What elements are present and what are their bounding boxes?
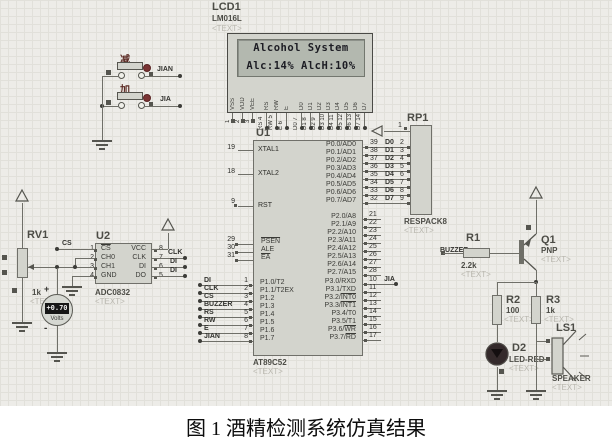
mcu-pin-number: 35 <box>370 171 378 178</box>
wire <box>497 282 536 283</box>
mcu-pin-number: 23 <box>369 227 377 234</box>
pin-end-marker <box>364 339 367 342</box>
lcd-pin-name: D7 <box>362 94 368 110</box>
pin-row: 32 D7 9 <box>363 197 410 205</box>
power-terminal-icon <box>529 186 543 200</box>
lcd-pin-name: D0 <box>299 94 305 110</box>
pin-name: P2.3/A11 <box>295 237 359 245</box>
pin-stub <box>238 150 253 151</box>
net-label: D5 <box>385 179 394 186</box>
wire <box>57 249 95 250</box>
mcu-pin-number: 30 <box>223 244 235 251</box>
pin-name: P3.2/INT0 <box>295 294 359 302</box>
mcu-pin-number: 25 <box>369 243 377 250</box>
r3-value: 1k <box>546 306 555 315</box>
mcu-pin-number: 7 <box>238 325 248 332</box>
mcu-pin-number: 37 <box>370 155 378 162</box>
mcu-pin-number: 38 <box>370 147 378 154</box>
respack-pin-number: 2 <box>400 139 404 146</box>
meter-plus-label: + <box>44 284 49 294</box>
figure-caption: 图 1 酒精检测系统仿真结果 <box>0 412 612 441</box>
lcd-pin-label: D310 <box>320 111 326 130</box>
junction-dot <box>285 126 289 130</box>
pin-name: P0.6/AD6 <box>290 189 359 197</box>
net-label-jia: JIA <box>160 96 171 103</box>
pot-ref: RV1 <box>27 229 48 241</box>
mcu-p3-pin-stubs: 10 JIA 11 12 13 <box>363 278 399 342</box>
pot-terminal-marker <box>2 255 7 260</box>
mcu-ref: U1 <box>256 127 270 139</box>
net-label: D0 <box>385 139 394 146</box>
d2-ref: D2 <box>512 342 526 354</box>
pin-name: VCC <box>112 244 149 253</box>
mcu-pin-number: 34 <box>370 179 378 186</box>
q1-ref: Q1 <box>541 234 556 246</box>
net-label: CLK <box>204 285 218 292</box>
mcu-pin-number: 19 <box>223 144 235 151</box>
pin-name: P3.4/T0 <box>295 310 359 318</box>
wire <box>168 233 169 249</box>
lcd-part: LM016L <box>212 14 242 23</box>
pin-name: CLK <box>112 253 149 262</box>
q1-text-placeholder: <TEXT> <box>541 255 571 264</box>
pin-stub <box>238 244 253 245</box>
mcu-pin-number: 13 <box>369 300 377 307</box>
wire-end-dot <box>198 339 202 343</box>
origin-marker <box>106 70 111 75</box>
lcd-pin-label: D18 <box>302 111 308 130</box>
mcu-pin-number: 21 <box>369 211 377 218</box>
respack-pin1-number: 1 <box>398 122 402 129</box>
mcu-pin-number: 4 <box>238 301 248 308</box>
mcu-pin-number: 28 <box>369 267 377 274</box>
adc-ref: U2 <box>96 230 110 242</box>
lcd-power-pins: VSS VSS1 VDD VDD2 VEE VEE3 <box>228 80 258 132</box>
pin-name: P3.3/INT1 <box>295 302 359 310</box>
pin-name: P0.3/AD3 <box>290 165 359 173</box>
pot-wiper-arrow-icon[interactable] <box>28 264 34 270</box>
pin-end-marker <box>251 119 255 123</box>
pin-name: DI <box>112 262 149 271</box>
resistor-r3[interactable] <box>531 296 541 324</box>
meter-minus-label: - <box>44 323 47 334</box>
wire <box>497 367 498 390</box>
pin-end-marker <box>235 259 238 262</box>
r2-value: 100 <box>506 306 519 315</box>
origin-marker <box>499 369 504 374</box>
net-label: DI <box>204 277 211 284</box>
lcd-pin-label: D29 <box>311 111 317 130</box>
mcu-p0-pin-rows: 39 D0 2 38 D1 3 37 D2 4 36 <box>363 141 410 205</box>
mcu-ctrl-pin-stubs: 29 30 31 <box>223 238 253 262</box>
pin-name: P0.5/AD5 <box>290 181 359 189</box>
pin-name: P2.4/A12 <box>295 245 359 253</box>
ground-icon <box>46 352 68 364</box>
mcu-pin-number: 24 <box>369 235 377 242</box>
mcu-p3-pin-names: P3.0/RXDP3.1/TXDP3.2/INT0P3.3/INT1P3.4/T… <box>295 278 359 342</box>
mcu-pin-number: 15 <box>369 316 377 323</box>
ground-icon <box>91 140 113 152</box>
lcd-pin-column: E E6 <box>282 80 292 132</box>
pin-name: P3.6/WR <box>295 326 359 334</box>
net-label: BUZZER <box>204 301 232 308</box>
pin-name: P3.1/TXD <box>295 286 359 294</box>
net-label: RW <box>204 317 216 324</box>
pushbutton[interactable] <box>117 62 143 70</box>
pin-row: 31 <box>223 254 253 262</box>
wire <box>75 258 95 259</box>
net-label: E <box>204 325 209 332</box>
mcu-pin-number: 18 <box>223 168 235 175</box>
pin-name: P2.0/A8 <box>295 213 359 221</box>
net-label-clk: CLK <box>168 249 182 256</box>
wire <box>536 200 537 234</box>
mcu-p0-pin-names: P0.0/AD0P0.1/AD1P0.2/AD2P0.3/AD3P0.4/AD4… <box>290 141 359 205</box>
lcd-pin-name: E <box>284 94 290 110</box>
pin-row: 17 <box>363 334 399 342</box>
wire-end-dot <box>183 274 187 278</box>
pot-body[interactable] <box>17 248 28 278</box>
mcu-pin-number: 6 <box>238 317 248 324</box>
resistor-r2[interactable] <box>492 295 502 325</box>
mcu-pin-number: 8 <box>238 333 248 340</box>
pin-end-marker <box>249 340 252 343</box>
wire <box>102 76 103 140</box>
pin-stub <box>238 260 253 261</box>
power-terminal-icon <box>15 189 29 203</box>
q1-type: PNP <box>541 246 557 255</box>
pin-end-marker <box>365 202 368 205</box>
pin-name: P0.4/AD4 <box>290 173 359 181</box>
respack-pin-number: 3 <box>400 147 404 154</box>
resistor-r1[interactable] <box>463 248 490 258</box>
mcu-pin-number: 29 <box>223 236 235 243</box>
lcd-ctrl-pins: RS RS4 RW RW5 E E6 <box>262 80 292 132</box>
respack-pin-number: 6 <box>400 171 404 178</box>
pin-name: P2.6/A14 <box>295 261 359 269</box>
net-label: CS <box>204 293 214 300</box>
mcu-pin-number: 27 <box>369 259 377 266</box>
power-terminal-icon <box>371 125 383 137</box>
mcu-p2-pin-stubs: 21 22 23 24 25 26 <box>363 213 381 277</box>
respack-text-placeholder: <TEXT> <box>404 226 434 235</box>
wire <box>384 131 410 132</box>
net-label: D6 <box>385 187 394 194</box>
respack-pin-number: 9 <box>400 195 404 202</box>
mcu-pin-number: 22 <box>369 219 377 226</box>
pin-name: P2.1/A9 <box>295 221 359 229</box>
wire <box>497 325 498 342</box>
mcu-p1-pin-rows: DI 1 CLK 2 CS 3 BUZZER 4 <box>200 279 253 343</box>
lcd-pin-name: D1 <box>308 94 314 110</box>
lcd-screen-line1: Alcohol System <box>237 42 365 54</box>
pin-name: P2.7/A15 <box>295 269 359 277</box>
voltmeter-unit: Volts <box>41 316 73 322</box>
mcu-pin-name: XTAL2 <box>258 170 279 177</box>
lcd-pin-column: VDD VDD2 <box>238 80 248 132</box>
lcd-pin-name: D4 <box>335 94 341 110</box>
pot-value: 1k <box>32 288 41 297</box>
power-terminal-icon <box>161 218 175 232</box>
net-label-cs: CS <box>62 240 72 247</box>
origin-marker <box>12 288 17 293</box>
respack-pin-number: 5 <box>400 163 404 170</box>
net-label: D3 <box>385 163 394 170</box>
wire <box>152 276 185 277</box>
wire-end-dot <box>183 256 187 260</box>
r1-value: 2.2k <box>461 261 477 270</box>
lcd-pin-name: D6 <box>353 94 359 110</box>
junction-dot <box>363 126 367 130</box>
wire <box>72 276 95 277</box>
pin-name: P3.5/T1 <box>295 318 359 326</box>
mcu-pin-number: 2 <box>238 285 248 292</box>
pin-end-marker <box>364 274 367 277</box>
schematic-canvas: LCD1 LM016L <TEXT> Alcohol System Alc:14… <box>0 0 612 406</box>
net-label: JIA <box>384 276 395 283</box>
respack-pin-number: 7 <box>400 179 404 186</box>
wire <box>536 282 537 296</box>
pin-name: P2.2/A10 <box>295 229 359 237</box>
net-label: D2 <box>385 155 394 162</box>
r2-text-placeholder: <TEXT> <box>504 315 534 324</box>
wire <box>144 106 180 107</box>
r2-ref: R2 <box>506 294 520 306</box>
mcu-pin-number: 36 <box>370 163 378 170</box>
button-actuator[interactable] <box>143 94 151 102</box>
lcd-pin-column: VEE VEE3 <box>248 80 258 132</box>
lcd-pin-name: VDD <box>240 94 246 110</box>
wire <box>152 249 168 250</box>
ls1-text-placeholder: <TEXT> <box>552 383 582 392</box>
mcu-pin-number: 1 <box>238 277 248 284</box>
net-label: D4 <box>385 171 394 178</box>
lcd-pin-name: VSS <box>230 94 236 110</box>
wire <box>443 253 463 254</box>
ground-icon <box>525 390 547 402</box>
button-terminal <box>118 72 125 79</box>
mcu-pin-number: 32 <box>370 195 378 202</box>
pin-name: P3.7/RD <box>295 334 359 342</box>
pin-end-marker <box>404 127 407 130</box>
ls1-ref: LS1 <box>556 322 576 334</box>
net-label: RS <box>204 309 214 316</box>
respack-part: RESPACK8 <box>404 217 447 226</box>
mcu-pin-number: 14 <box>369 308 377 315</box>
mcu-pin-number: 33 <box>370 187 378 194</box>
ls1-part: SPEAKER <box>552 374 591 383</box>
wire <box>22 278 23 322</box>
lcd-pin-label: D512 <box>338 111 344 130</box>
lcd-pin-label: D714 <box>356 111 362 130</box>
respack-pin-number: 4 <box>400 155 404 162</box>
voltmeter-display: +0.70 <box>45 303 69 314</box>
wire <box>28 267 95 268</box>
wire <box>200 341 253 342</box>
mcu-pin-number: 31 <box>223 252 235 259</box>
mcu-pin-name: XTAL1 <box>258 146 279 153</box>
mcu-pin-number: 39 <box>370 139 378 146</box>
lcd-pin-name: RS <box>264 94 270 110</box>
lcd-pin-label: E6 <box>278 111 284 130</box>
pushbutton[interactable] <box>117 92 143 100</box>
ground-icon <box>11 322 33 334</box>
wire <box>363 203 410 204</box>
lcd-pin-name: D5 <box>344 94 350 110</box>
pin-name: P2.5/A13 <box>295 253 359 261</box>
pin-end-marker <box>234 204 237 207</box>
adc-text-placeholder: <TEXT> <box>95 297 125 306</box>
origin-marker <box>106 100 111 105</box>
lcd-data-pins: D0 D07 D1 D18 D2 D29 D3 D310 <box>297 80 369 132</box>
junction-dot <box>73 265 77 269</box>
respack-body[interactable] <box>410 125 432 215</box>
wire-end-dot <box>55 247 59 251</box>
lcd-pin-label: D613 <box>347 111 353 130</box>
led-d2[interactable] <box>484 341 510 367</box>
lcd-pin-label: D411 <box>329 111 335 130</box>
pot-terminal-marker <box>2 270 7 275</box>
adc-part: ADC0832 <box>95 288 130 297</box>
lcd-pin-name: RW <box>274 94 280 110</box>
button-terminal <box>118 102 125 109</box>
lcd-pin-name: D2 <box>317 94 323 110</box>
wire <box>102 76 118 77</box>
ground-icon <box>486 390 508 402</box>
pin-stub <box>238 206 253 207</box>
net-label-di: DI <box>170 258 177 265</box>
pin-row: JIAN 8 <box>200 335 253 343</box>
r3-ref: R3 <box>546 294 560 306</box>
mcu-pin-number: 16 <box>369 324 377 331</box>
wire-end-dot <box>183 265 187 269</box>
mcu-pin-number: 26 <box>369 251 377 258</box>
wire-end-dot <box>178 74 182 78</box>
wire <box>22 203 23 248</box>
transistor-q1[interactable] <box>515 228 541 274</box>
mcu-p2-pin-names: P2.0/A8P2.1/A9P2.2/A10P2.3/A11P2.4/A12P2… <box>295 213 359 277</box>
wire-end-dot <box>178 104 182 108</box>
net-label: JIAN <box>204 333 220 340</box>
pin-name: P0.2/AD2 <box>290 157 359 165</box>
lcd-text-placeholder: <TEXT> <box>212 24 242 33</box>
respack-pin-number: 8 <box>400 187 404 194</box>
net-label-jian: JIAN <box>157 66 173 73</box>
mcu-pin-number: 17 <box>369 332 377 339</box>
respack-ref: RP1 <box>407 112 428 124</box>
lcd-pin-column: VSS VSS1 <box>228 80 238 132</box>
lcd-ref: LCD1 <box>212 1 241 13</box>
wire <box>144 76 180 77</box>
mcu-text-placeholder: <TEXT> <box>253 367 283 376</box>
lcd-pin-label: D07 <box>293 111 299 130</box>
pin-name: P0.0/AD0 <box>290 141 359 149</box>
mcu-pin-name: RST <box>258 202 272 209</box>
mcu-part: AT89C52 <box>253 358 287 367</box>
pin-stub <box>238 252 253 253</box>
wire <box>72 276 73 286</box>
wire <box>152 267 185 268</box>
mcu-pin-number: 10 <box>369 276 377 283</box>
lcd-screen-line2: Alc:14% AlcH:10% <box>237 60 365 72</box>
wire <box>57 326 58 352</box>
net-label: D7 <box>385 195 394 202</box>
pin-name: P0.7/AD7 <box>290 197 359 205</box>
pin-name: P0.1/AD1 <box>290 149 359 157</box>
wire <box>102 106 118 107</box>
button-actuator[interactable] <box>143 64 151 72</box>
r1-ref: R1 <box>466 232 480 244</box>
wire <box>57 268 58 294</box>
mcu-pin-number: 12 <box>369 292 377 299</box>
lcd-pin-name: D3 <box>326 94 332 110</box>
r1-text-placeholder: <TEXT> <box>461 270 491 279</box>
mcu-pin-number: 11 <box>369 284 376 291</box>
pin-stub <box>238 174 253 175</box>
wire <box>497 282 498 295</box>
lcd-pin-column: D7 D714 <box>360 80 369 132</box>
net-label-do: DI <box>170 267 177 274</box>
mcu-pin-number: 5 <box>238 309 248 316</box>
origin-marker <box>526 225 531 230</box>
net-label: D1 <box>385 147 394 154</box>
adc-right-pin-names: VCCCLKDIDO <box>112 244 149 280</box>
wire <box>152 258 185 259</box>
d2-text-placeholder: <TEXT> <box>509 364 539 373</box>
pin-name: DO <box>112 271 149 280</box>
mcu-pin-number: 3 <box>238 293 248 300</box>
wire <box>536 324 537 390</box>
lcd-pin-name: VEE <box>250 94 256 110</box>
pin-name: P3.0/RXD <box>295 278 359 286</box>
